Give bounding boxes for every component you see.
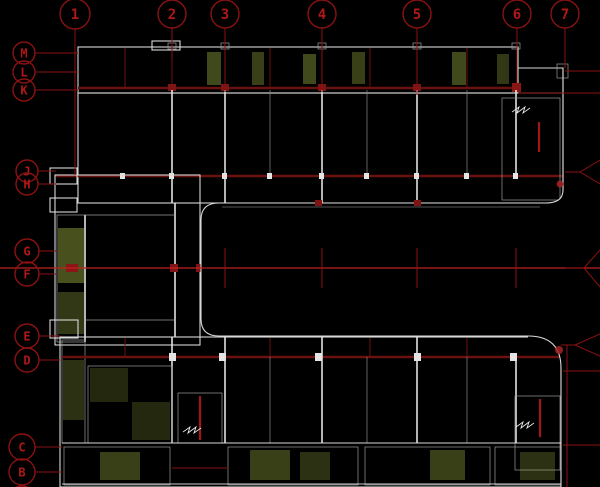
column-marker: [168, 84, 176, 91]
floor-plan-canvas[interactable]: 1234567MLKJHGFEDCB: [0, 0, 600, 487]
green-panel: [100, 452, 140, 480]
green-panel: [58, 292, 84, 334]
grid-bubble-label-6: 6: [513, 7, 521, 23]
green-panel: [63, 360, 84, 420]
grid-bubble-label-L: L: [20, 66, 27, 80]
green-panel: [252, 52, 264, 85]
green-panel: [300, 452, 330, 480]
column-cap: [512, 43, 520, 49]
leader-branch: [565, 160, 600, 184]
fine-panel: [365, 447, 490, 485]
green-panel: [452, 52, 466, 85]
grid-bubble-label-3: 3: [221, 7, 229, 23]
grid-bubble-label-C: C: [18, 441, 25, 455]
corner-glow: [555, 346, 563, 354]
grid-bubble-label-K: K: [20, 84, 28, 98]
grid-bubble-label-B: B: [18, 466, 25, 480]
staircase-top-right: [502, 98, 560, 200]
top-wing-right-step: [518, 47, 563, 93]
grid-bubble-label-D: D: [23, 354, 30, 368]
grid-bubble-label-7: 7: [561, 7, 569, 23]
left-wing: [50, 168, 203, 345]
stair-direction-arrow: [516, 422, 534, 428]
top-wing: [55, 41, 568, 203]
grid-bubble-label-M: M: [20, 47, 27, 61]
fine-panel: [228, 447, 358, 485]
column-marker: [414, 200, 421, 206]
corner-glow: [557, 181, 564, 188]
column-marker: [315, 200, 322, 206]
grid-bubble-label-4: 4: [318, 7, 326, 23]
green-panel: [207, 52, 221, 85]
grid-bubble-label-E: E: [23, 330, 30, 344]
notch-box: [50, 198, 77, 212]
green-panel: [497, 54, 509, 84]
green-panel: [303, 54, 316, 84]
staircase-bottom-middle: [178, 393, 222, 443]
top-wing-lower-slab: [78, 93, 563, 203]
stair-direction-arrow: [512, 107, 530, 113]
grid-bubble-label-5: 5: [413, 7, 421, 23]
grid-bubble-label-J: J: [23, 165, 30, 179]
stair-direction-arrow: [183, 427, 201, 433]
green-panel: [132, 402, 170, 440]
grid-bubble-label-H: H: [23, 178, 30, 192]
bottom-wing: [60, 336, 562, 487]
green-panel: [520, 452, 555, 480]
grid-bubble-label-F: F: [23, 268, 30, 282]
green-panel: [430, 450, 465, 480]
green-panel: [90, 368, 128, 402]
green-panel: [352, 52, 365, 84]
cad-drawing-viewport[interactable]: 1234567MLKJHGFEDCB: [0, 0, 600, 487]
bottom-wing-partitions: [172, 337, 516, 443]
top-wing-partitions: [172, 90, 516, 203]
grid-bubble-label-G: G: [23, 245, 30, 259]
grid-bubble-label-2: 2: [168, 7, 176, 23]
green-panel: [250, 450, 290, 480]
green-panel: [58, 228, 84, 283]
upper-band-red-stubs: [125, 48, 467, 88]
grid-bubble-label-1: 1: [71, 7, 79, 23]
